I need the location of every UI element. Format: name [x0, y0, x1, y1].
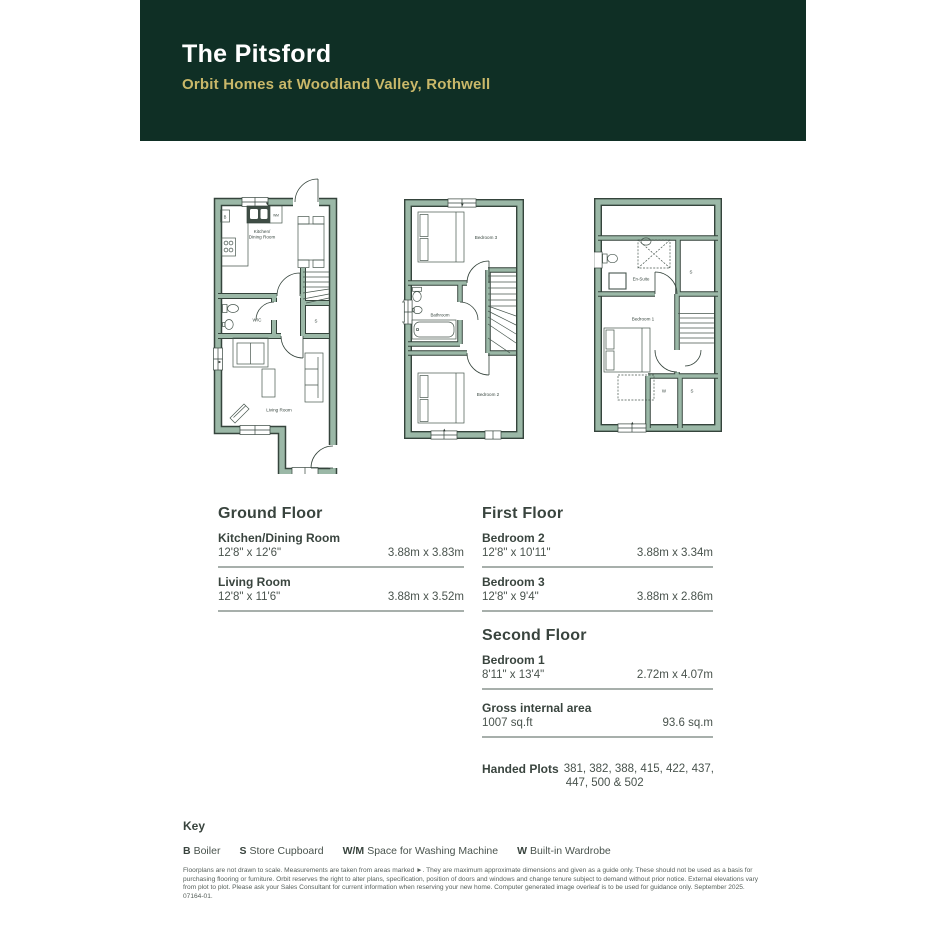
- first-floor-table: First Floor Bedroom 2 12'8" x 10'11" 3.8…: [482, 505, 713, 619]
- gross-area-label: Gross internal area: [482, 701, 713, 715]
- key-section: Key BBoiler SStore Cupboard W/MSpace for…: [183, 819, 611, 857]
- store-label: S: [315, 319, 318, 324]
- room-name: Bedroom 2: [482, 531, 713, 545]
- kitchen-label-line2: Dining Room: [249, 235, 276, 240]
- room-name: Living Room: [218, 575, 464, 589]
- ground-floor-heading: Ground Floor: [218, 505, 464, 523]
- key-item: WBuilt-in Wardrobe: [517, 845, 611, 857]
- handed-plots-numbers: 381, 382, 388, 415, 422, 437, 447, 500 &…: [564, 762, 714, 790]
- second-floor-table: Second Floor Bedroom 1 8'11" x 13'4" 2.7…: [482, 627, 713, 697]
- ground-floor-plan: B WM Kitchen/ Dining Room W/C S Living R…: [202, 172, 342, 474]
- table-row: Bedroom 3 12'8" x 9'4" 3.88m x 2.86m: [482, 575, 713, 612]
- boiler-label: B: [224, 215, 227, 220]
- table-row: Bedroom 2 12'8" x 10'11" 3.88m x 3.34m: [482, 531, 713, 568]
- metric-dims: 2.72m x 4.07m: [637, 669, 713, 682]
- kitchen-label-line1: Kitchen/: [254, 229, 271, 234]
- wc-label: W/C: [253, 318, 263, 323]
- metric-dims: 3.88m x 2.86m: [637, 591, 713, 604]
- imperial-dims: 12'8" x 12'6": [218, 547, 281, 560]
- divider: [482, 566, 713, 568]
- divider: [218, 610, 464, 612]
- washing-machine-label: WM: [273, 214, 279, 218]
- ensuite-label: En-Suite: [633, 277, 650, 282]
- store-bottom-label: S: [691, 389, 694, 394]
- divider: [482, 610, 713, 612]
- metric-dims: 3.88m x 3.83m: [388, 547, 464, 560]
- divider: [482, 688, 713, 690]
- key-items: BBoiler SStore Cupboard W/MSpace for Was…: [183, 845, 611, 857]
- disclaimer-text: Floorplans are not drawn to scale. Measu…: [183, 867, 765, 902]
- ground-floor-table: Ground Floor Kitchen/Dining Room 12'8" x…: [218, 505, 464, 619]
- gross-area-metric: 93.6 sq.m: [663, 717, 714, 730]
- table-row: Living Room 12'8" x 11'6" 3.88m x 3.52m: [218, 575, 464, 612]
- bedroom1-label: Bedroom 1: [632, 317, 655, 322]
- living-room-label: Living Room: [266, 408, 292, 413]
- key-item: W/MSpace for Washing Machine: [343, 845, 499, 857]
- gross-area-imperial: 1007 sq.ft: [482, 717, 533, 730]
- second-floor-heading: Second Floor: [482, 627, 713, 645]
- store-top-label: S: [690, 270, 693, 275]
- bedroom2-label: Bedroom 2: [477, 392, 500, 397]
- key-heading: Key: [183, 819, 611, 833]
- first-floor-plan: Bedroom 3 Bathroom Bedroom 2: [402, 198, 532, 443]
- page-title: The Pitsford: [182, 40, 806, 69]
- key-item: SStore Cupboard: [239, 845, 323, 857]
- table-row: Kitchen/Dining Room 12'8" x 12'6" 3.88m …: [218, 531, 464, 568]
- second-walls: [598, 202, 718, 428]
- header-banner: The Pitsford Orbit Homes at Woodland Val…: [140, 0, 806, 141]
- room-name: Bedroom 3: [482, 575, 713, 589]
- divider: [218, 566, 464, 568]
- key-item: BBoiler: [183, 845, 220, 857]
- divider: [482, 736, 713, 738]
- handed-plots-label: Handed Plots: [482, 762, 559, 776]
- room-name: Bedroom 1: [482, 653, 713, 667]
- first-floor-heading: First Floor: [482, 505, 713, 523]
- brochure-page: The Pitsford Orbit Homes at Woodland Val…: [0, 0, 945, 945]
- metric-dims: 3.88m x 3.34m: [637, 547, 713, 560]
- second-floor-plan: En-Suite S Bedroom 1 W S: [594, 194, 722, 434]
- imperial-dims: 12'8" x 11'6": [218, 591, 280, 604]
- metric-dims: 3.88m x 3.52m: [388, 591, 464, 604]
- handed-plots: Handed Plots 381, 382, 388, 415, 422, 43…: [482, 762, 722, 790]
- page-subtitle: Orbit Homes at Woodland Valley, Rothwell: [182, 76, 806, 93]
- room-name: Kitchen/Dining Room: [218, 531, 464, 545]
- imperial-dims: 8'11" x 13'4": [482, 669, 544, 682]
- bathroom-label: Bathroom: [430, 313, 449, 318]
- imperial-dims: 12'8" x 10'11": [482, 547, 551, 560]
- gross-internal-area: Gross internal area 1007 sq.ft 93.6 sq.m: [482, 701, 713, 745]
- table-row: Bedroom 1 8'11" x 13'4" 2.72m x 4.07m: [482, 653, 713, 690]
- bedroom3-label: Bedroom 3: [475, 235, 498, 240]
- imperial-dims: 12'8" x 9'4": [482, 591, 539, 604]
